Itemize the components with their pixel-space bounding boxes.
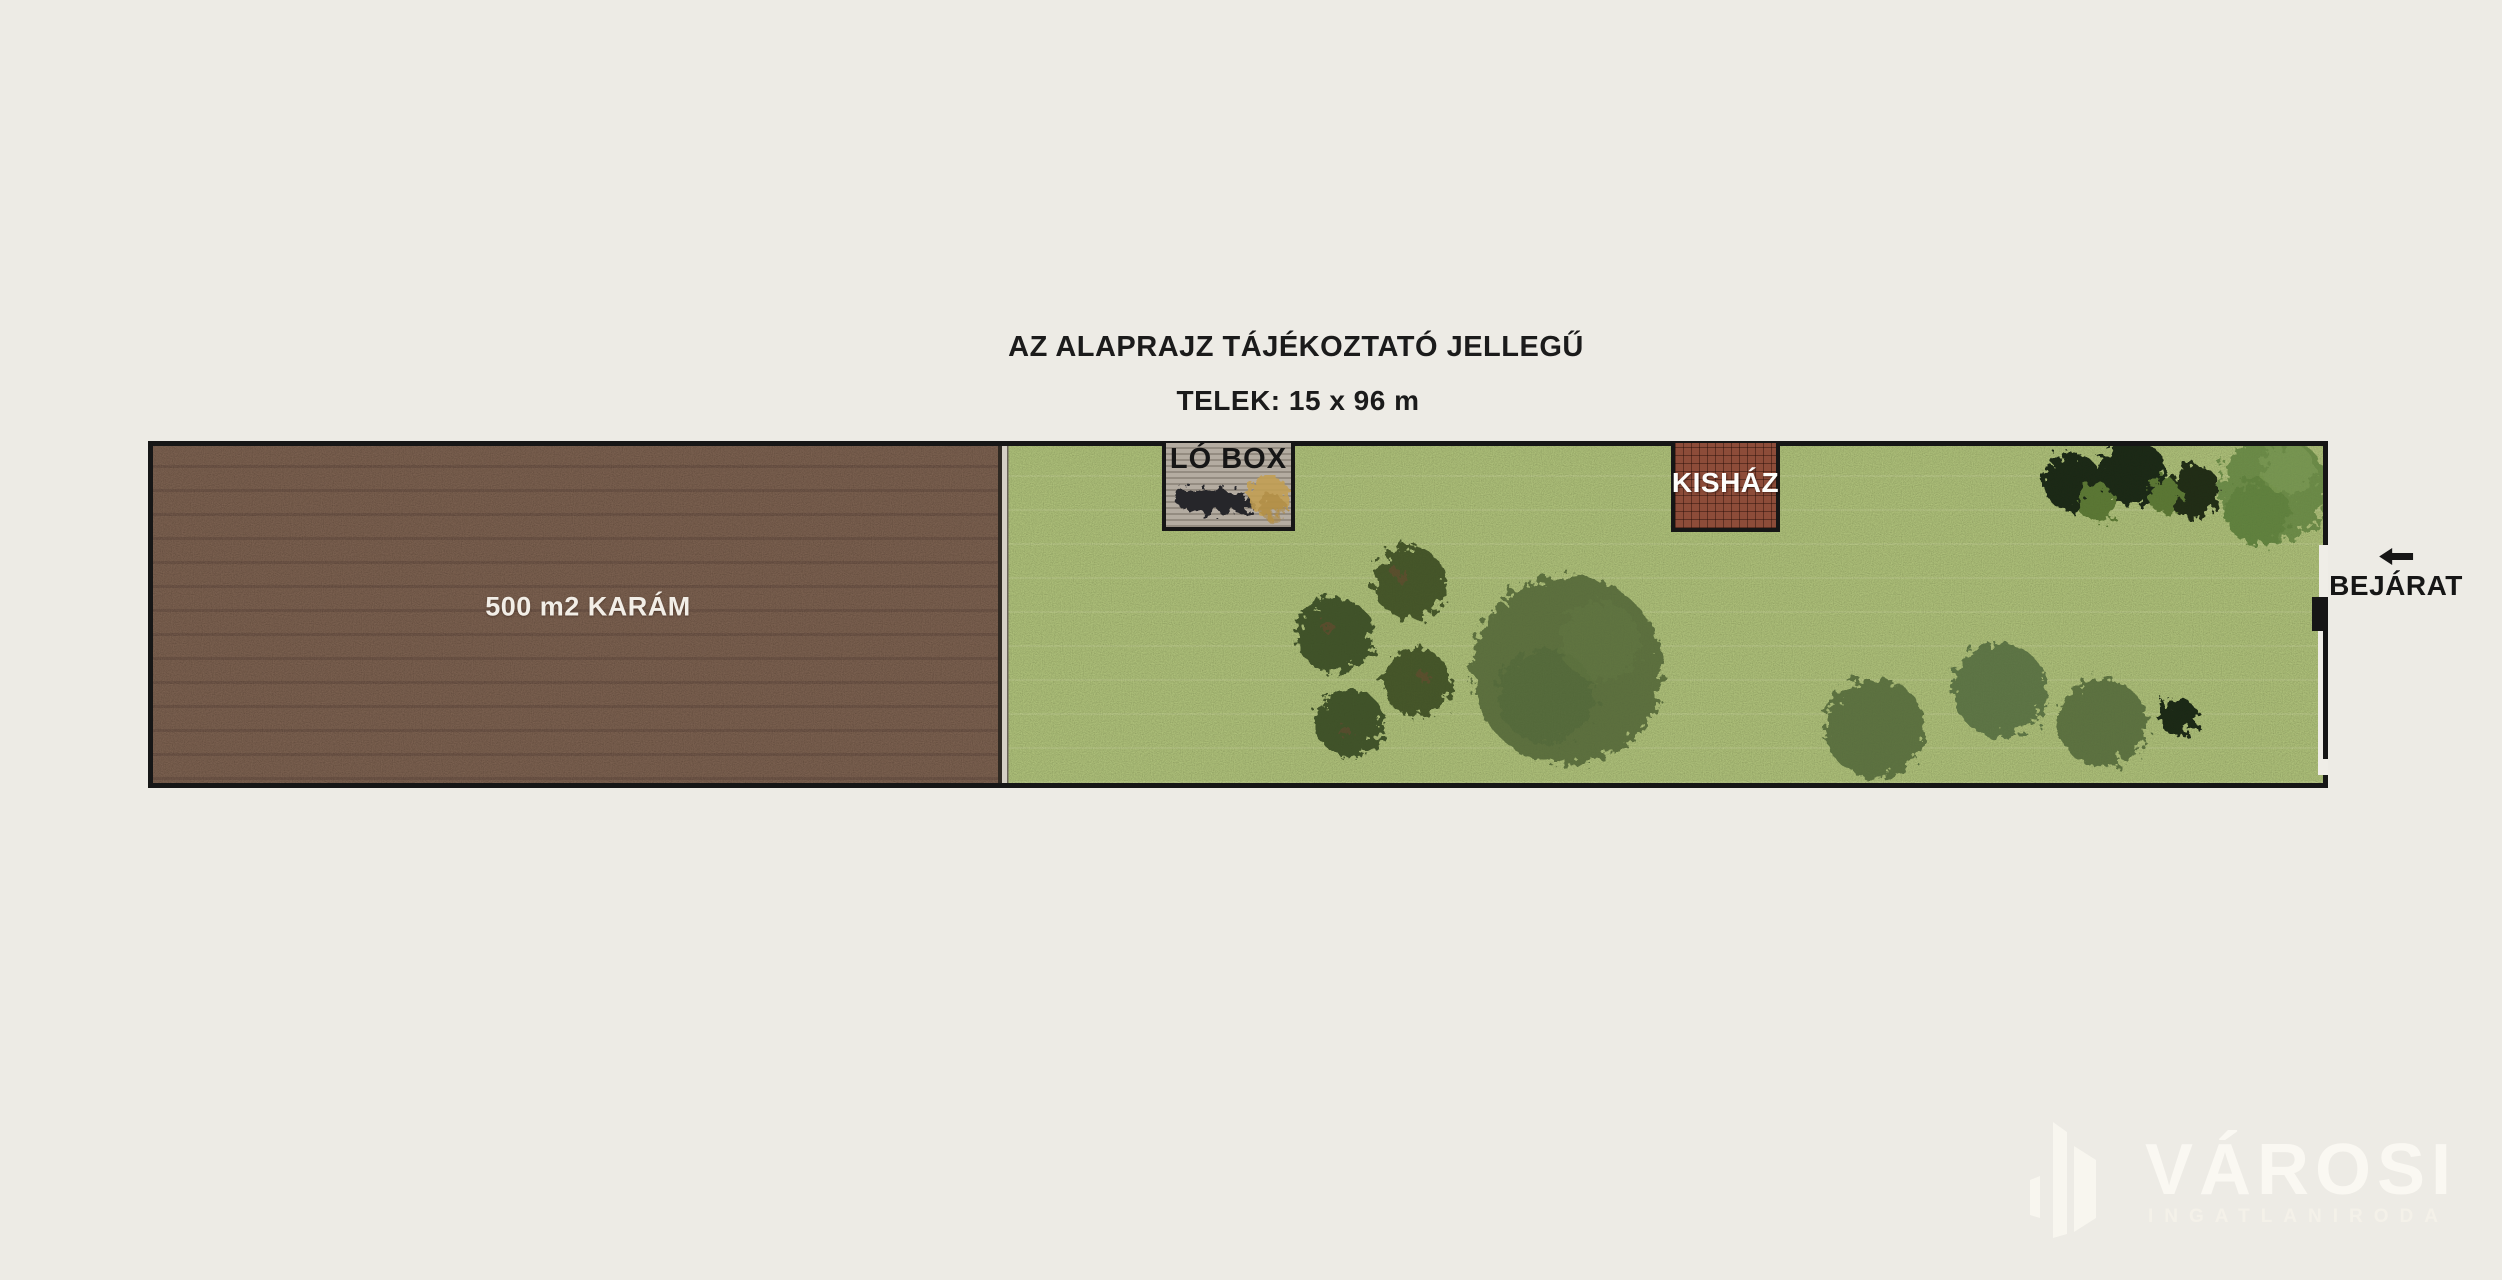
horse-and-hay-graphic bbox=[1168, 475, 1293, 525]
site-plan: 500 m2 KARÁM LÓ BOX KISHÁZ bbox=[148, 441, 2328, 788]
fence-light-strip bbox=[2318, 631, 2323, 775]
building-logo-icon bbox=[2030, 1120, 2110, 1240]
horse-box-label: LÓ BOX bbox=[1166, 443, 1291, 475]
hay-pile-icon bbox=[1247, 475, 1289, 520]
floor-plan-page: { "page": { "background_color": "#edebe5… bbox=[0, 0, 2502, 1280]
logo-brand-text: VÁROSI bbox=[2145, 1134, 2457, 1206]
plot-size-label: TELEK: 15 x 96 m bbox=[1177, 385, 1420, 417]
page-title: AZ ALAPRAJZ TÁJÉKOZTATÓ JELLEGŰ bbox=[1008, 331, 1584, 364]
boundary-divider bbox=[998, 441, 1009, 788]
arrow-left-icon bbox=[2379, 548, 2413, 565]
entrance-annotation: BEJÁRAT bbox=[2329, 548, 2463, 602]
entrance-gap-lower bbox=[2319, 759, 2328, 775]
horse-icon bbox=[1174, 488, 1252, 514]
horse-box-structure: LÓ BOX bbox=[1162, 443, 1295, 531]
entrance-label: BEJÁRAT bbox=[2329, 570, 2463, 602]
small-house-label: KISHÁZ bbox=[1672, 467, 1779, 499]
logo-subtitle-text: INGATLANIRODA bbox=[2148, 1206, 2449, 1228]
entrance-gap bbox=[2319, 545, 2328, 597]
small-house-structure: KISHÁZ bbox=[1671, 443, 1780, 532]
gate-post bbox=[2312, 597, 2328, 631]
paddock-area-label: 500 m2 KARÁM bbox=[485, 592, 691, 623]
agency-watermark: VÁROSI INGATLANIRODA bbox=[2030, 1120, 2475, 1255]
